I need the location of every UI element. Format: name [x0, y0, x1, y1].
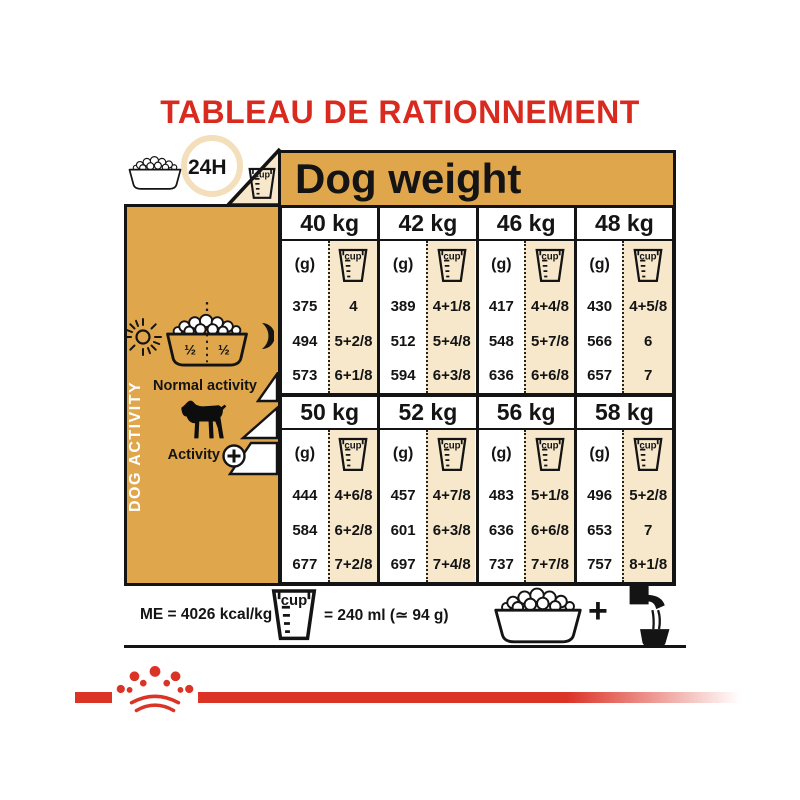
weight-group-row-1: 40 kg(g)37549457345+2/86+1/842 kg(g)3895…	[282, 208, 672, 393]
grams-subcolumn: (g)483636737	[479, 430, 525, 582]
energy-label: ME = 4026 kcal/kg	[140, 606, 272, 624]
cups-value-cell: 6+2/8	[330, 513, 378, 548]
grams-value-cell: 389	[380, 289, 426, 324]
grams-subcolumn: (g)430566657	[577, 241, 623, 393]
dog-activity-vertical-label: DOG ACTIVITY	[127, 380, 151, 512]
dog-weight-label: Dog weight	[281, 155, 521, 203]
cup-icon-cell	[526, 430, 574, 478]
weight-column: 56 kg(g)4836367375+1/86+6/87+7/8	[476, 397, 574, 582]
grams-value-cell: 483	[479, 478, 525, 513]
grams-subcolumn: (g)375494573	[282, 241, 328, 393]
weight-header: 40 kg	[282, 208, 377, 241]
weight-header: 48 kg	[577, 208, 672, 241]
measuring-cup-icon	[437, 247, 467, 283]
grams-value-cell: 566	[577, 324, 623, 359]
measuring-cup-icon	[633, 436, 663, 472]
measuring-cup-icon	[633, 247, 663, 283]
grams-value-cell: 594	[380, 358, 426, 393]
cup-icon-cell	[330, 430, 378, 478]
grams-value-cell: 677	[282, 547, 328, 582]
weight-column-body: (g)4836367375+1/86+6/87+7/8	[479, 430, 574, 582]
cup-icon-cell	[330, 241, 378, 289]
cup-equivalence-label: = 240 ml (≃ 94 g)	[324, 606, 449, 625]
daily-ration-label: 24H	[188, 156, 227, 180]
cups-subcolumn: 5+1/86+6/87+7/8	[524, 430, 574, 582]
cups-value-cell: 5+2/8	[330, 324, 378, 359]
cups-value-cell: 6+6/8	[526, 513, 574, 548]
red-band-left	[75, 692, 112, 703]
dog-icon	[179, 393, 228, 445]
weight-header: 58 kg	[577, 397, 672, 430]
weight-column: 46 kg(g)4175486364+4/85+7/86+6/8	[476, 208, 574, 393]
cups-subcolumn: 5+2/878+1/8	[622, 430, 672, 582]
weight-header: 52 kg	[380, 397, 475, 430]
cups-subcolumn: 4+4/85+7/86+6/8	[524, 241, 574, 393]
weight-header: 42 kg	[380, 208, 475, 241]
weight-column-body: (g)37549457345+2/86+1/8	[282, 241, 377, 393]
measuring-cup-icon	[271, 586, 317, 642]
cups-value-cell: 4+1/8	[428, 289, 476, 324]
weight-header: 56 kg	[479, 397, 574, 430]
grams-unit-label: (g)	[577, 241, 623, 289]
grams-unit-label: (g)	[380, 430, 426, 478]
cup-icon-cell	[624, 430, 672, 478]
grams-value-cell: 601	[380, 513, 426, 548]
cups-value-cell: 4+6/8	[330, 478, 378, 513]
grams-value-cell: 417	[479, 289, 525, 324]
grams-value-cell: 636	[479, 358, 525, 393]
grams-unit-label: (g)	[282, 430, 328, 478]
grams-subcolumn: (g)496653757	[577, 430, 623, 582]
measuring-cup-icon	[437, 436, 467, 472]
svg-text:½: ½	[184, 342, 196, 358]
cups-value-cell: 7+2/8	[330, 547, 378, 582]
cups-value-cell: 8+1/8	[624, 547, 672, 582]
cups-value-cell: 6	[624, 324, 672, 359]
grams-value-cell: 737	[479, 547, 525, 582]
weight-table: 40 kg(g)37549457345+2/86+1/842 kg(g)3895…	[278, 204, 676, 586]
sun-icon	[122, 316, 164, 358]
cups-subcolumn: 4+5/867	[622, 241, 672, 393]
cups-subcolumn: 4+7/86+3/87+4/8	[426, 430, 476, 582]
ration-table-page: TABLEAU DE RATIONNEMENT 24H Dog weight D…	[0, 0, 800, 800]
grams-unit-label: (g)	[479, 430, 525, 478]
weight-column: 40 kg(g)37549457345+2/86+1/8	[282, 208, 377, 393]
red-band-right	[198, 692, 740, 703]
cups-value-cell: 7	[624, 513, 672, 548]
half-half-bowl-icon: ½ ½	[160, 300, 254, 370]
weight-column-body: (g)4445846774+6/86+2/87+2/8	[282, 430, 377, 582]
weight-column-body: (g)4175486364+4/85+7/86+6/8	[479, 241, 574, 393]
weight-header: 46 kg	[479, 208, 574, 241]
weight-column-body: (g)4305666574+5/867	[577, 241, 672, 393]
grams-value-cell: 444	[282, 478, 328, 513]
cups-value-cell: 6+1/8	[330, 358, 378, 393]
grams-value-cell: 494	[282, 324, 328, 359]
grams-value-cell: 653	[577, 513, 623, 548]
activity-label: Activity	[150, 447, 220, 463]
cups-value-cell: 7	[624, 358, 672, 393]
weight-column: 50 kg(g)4445846774+6/86+2/87+2/8	[282, 397, 377, 582]
cups-subcolumn: 4+6/86+2/87+2/8	[328, 430, 378, 582]
cups-value-cell: 4	[330, 289, 378, 324]
cups-value-cell: 4+7/8	[428, 478, 476, 513]
cups-value-cell: 6+3/8	[428, 513, 476, 548]
grams-value-cell: 584	[282, 513, 328, 548]
cups-value-cell: 5+4/8	[428, 324, 476, 359]
grams-value-cell: 512	[380, 324, 426, 359]
grams-value-cell: 757	[577, 547, 623, 582]
weight-column: 42 kg(g)3895125944+1/85+4/86+3/8	[377, 208, 475, 393]
cups-value-cell: 5+2/8	[624, 478, 672, 513]
weight-column: 52 kg(g)4576016974+7/86+3/87+4/8	[377, 397, 475, 582]
grams-value-cell: 496	[577, 478, 623, 513]
grams-unit-label: (g)	[380, 241, 426, 289]
weight-column-body: (g)4966537575+2/878+1/8	[577, 430, 672, 582]
measuring-cup-icon	[338, 247, 368, 283]
measuring-cup-icon	[535, 436, 565, 472]
cup-icon-cell	[526, 241, 574, 289]
grams-value-cell: 430	[577, 289, 623, 324]
food-bowl-icon	[490, 582, 586, 646]
cups-value-cell: 6+3/8	[428, 358, 476, 393]
moon-icon	[248, 320, 274, 352]
grams-subcolumn: (g)457601697	[380, 430, 426, 582]
grams-value-cell: 457	[380, 478, 426, 513]
measuring-cup-icon	[338, 436, 368, 472]
grams-subcolumn: (g)417548636	[479, 241, 525, 393]
weight-column-body: (g)3895125944+1/85+4/86+3/8	[380, 241, 475, 393]
grams-value-cell: 573	[282, 358, 328, 393]
weight-column-body: (g)4576016974+7/86+3/87+4/8	[380, 430, 475, 582]
crown-icon	[111, 664, 199, 714]
grams-value-cell: 636	[479, 513, 525, 548]
cups-subcolumn: 4+1/85+4/86+3/8	[426, 241, 476, 393]
cups-value-cell: 4+4/8	[526, 289, 574, 324]
cups-value-cell: 5+1/8	[526, 478, 574, 513]
footer-divider	[124, 645, 686, 648]
cup-icon-cell	[428, 241, 476, 289]
cup-icon-cell	[428, 430, 476, 478]
cups-value-cell: 6+6/8	[526, 358, 574, 393]
grams-subcolumn: (g)444584677	[282, 430, 328, 582]
cups-value-cell: 7+4/8	[428, 547, 476, 582]
grams-unit-label: (g)	[282, 241, 328, 289]
page-title: TABLEAU DE RATIONNEMENT	[0, 94, 800, 131]
plus-symbol: +	[588, 592, 608, 631]
weight-column: 58 kg(g)4966537575+2/878+1/8	[574, 397, 672, 582]
grams-subcolumn: (g)389512594	[380, 241, 426, 393]
grams-unit-label: (g)	[577, 430, 623, 478]
activity-plus-icon	[221, 443, 247, 469]
grams-value-cell: 657	[577, 358, 623, 393]
grams-unit-label: (g)	[479, 241, 525, 289]
weight-group-row-2: 50 kg(g)4445846774+6/86+2/87+2/852 kg(g)…	[282, 393, 672, 582]
svg-text:½: ½	[218, 342, 230, 358]
cups-value-cell: 4+5/8	[624, 289, 672, 324]
cup-icon-cell	[624, 241, 672, 289]
cups-subcolumn: 45+2/86+1/8	[328, 241, 378, 393]
grams-value-cell: 548	[479, 324, 525, 359]
dog-weight-header: Dog weight	[278, 150, 676, 208]
cups-value-cell: 7+7/8	[526, 547, 574, 582]
weight-header: 50 kg	[282, 397, 377, 430]
measuring-cup-icon	[535, 247, 565, 283]
weight-column: 48 kg(g)4305666574+5/867	[574, 208, 672, 393]
measuring-cup-icon	[248, 166, 276, 200]
grams-value-cell: 375	[282, 289, 328, 324]
food-bowl-icon	[126, 152, 184, 192]
grams-value-cell: 697	[380, 547, 426, 582]
cups-value-cell: 5+7/8	[526, 324, 574, 359]
